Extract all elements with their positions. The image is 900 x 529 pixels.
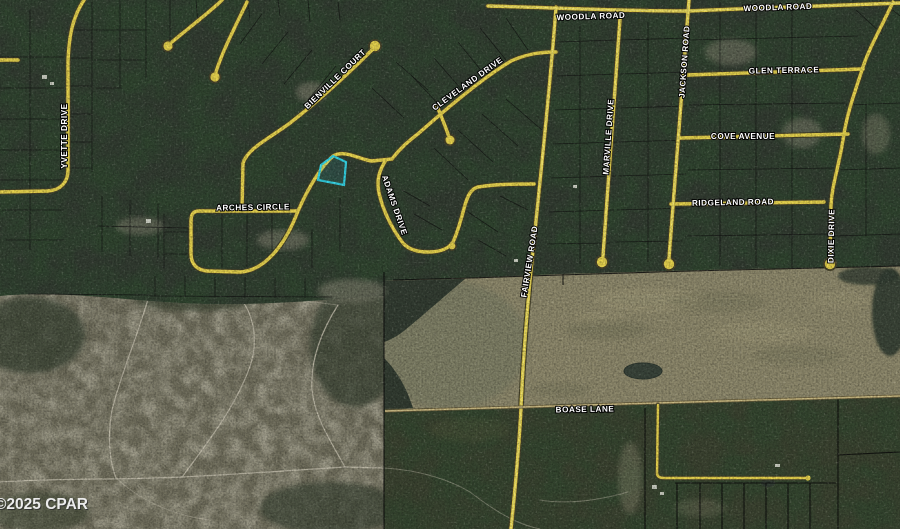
- road-label-glen-terrace: GLEN TERRACE: [749, 65, 820, 75]
- svg-text:©2025 CPAR: ©2025 CPAR: [0, 496, 88, 513]
- road-label-cove-avenue: COVE AVENUE: [711, 132, 775, 141]
- road-label-dixie-drive: DIXIE DRIVE: [827, 209, 837, 263]
- road-label-arches-circle: ARCHES CIRCLE: [216, 202, 290, 212]
- road-label-ridgeland-road: RIDGELAND ROAD: [692, 197, 774, 207]
- road-label-yvette-drive: YVETTE DRIVE: [60, 103, 69, 168]
- satellite-parcel-map[interactable]: WOODLA ROAD WOODLA ROAD GLEN TERRACE COV…: [0, 0, 900, 529]
- grain-light: [0, 0, 900, 529]
- copyright-watermark: ©2025 CPAR ©2025 CPAR: [0, 496, 89, 514]
- map-canvas[interactable]: WOODLA ROAD WOODLA ROAD GLEN TERRACE COV…: [0, 0, 900, 529]
- road-label-boase-lane: BOASE LANE: [556, 404, 615, 414]
